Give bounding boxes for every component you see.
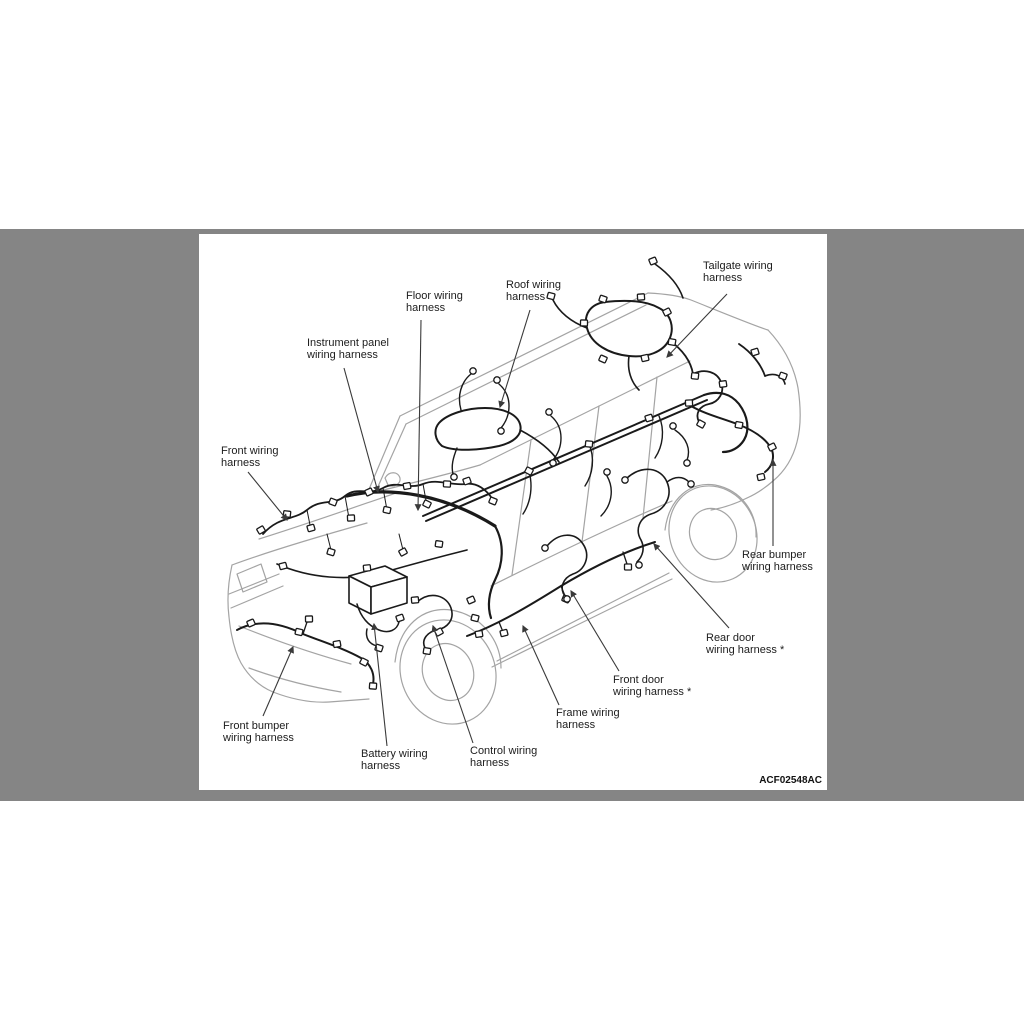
label-rear-door-wiring-harness: Rear door wiring harness *	[706, 633, 784, 656]
diagram-page: Tailgate wiring harness Roof wiring harn…	[199, 234, 827, 790]
label-floor-wiring-harness: Floor wiring harness	[406, 291, 463, 314]
label-control-wiring-harness: Control wiring harness	[470, 746, 537, 769]
wiring-harness-lines	[237, 264, 785, 684]
label-frame-wiring-harness: Frame wiring harness	[556, 708, 620, 731]
label-battery-wiring-harness: Battery wiring harness	[361, 749, 428, 772]
label-front-wiring-harness: Front wiring harness	[221, 446, 278, 469]
label-tailgate-wiring-harness: Tailgate wiring harness	[703, 261, 773, 284]
label-front-door-wiring-harness: Front door wiring harness *	[613, 675, 691, 698]
label-instrument-panel-wiring-harness: Instrument panel wiring harness	[307, 338, 389, 361]
label-roof-wiring-harness: Roof wiring harness	[506, 280, 561, 303]
harness-connectors	[247, 257, 788, 689]
label-front-bumper-wiring-harness: Front bumper wiring harness	[223, 721, 294, 744]
vehicle-wiring-illustration	[199, 234, 827, 790]
label-rear-bumper-wiring-harness: Rear bumper wiring harness	[742, 550, 813, 573]
figure-code: ACF02548AC	[759, 775, 822, 786]
